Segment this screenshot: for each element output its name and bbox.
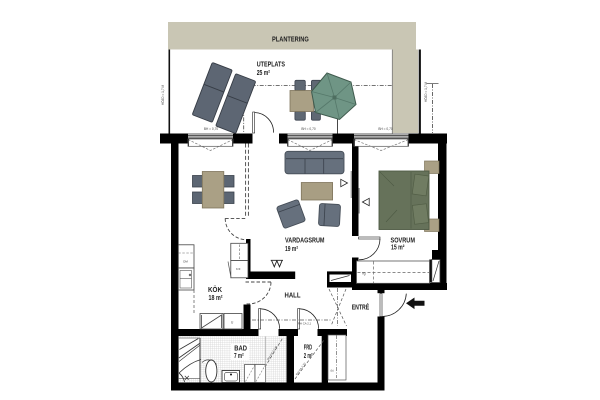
svg-text:DM: DM	[183, 259, 188, 263]
svg-text:SOVRUM: SOVRUM	[391, 236, 416, 245]
svg-text:ENTRÉ: ENTRÉ	[352, 302, 370, 311]
svg-text:RH CA 2,1: RH CA 2,1	[298, 322, 312, 326]
svg-text:K/F: K/F	[236, 267, 241, 271]
svg-text:15 m²: 15 m²	[391, 245, 405, 252]
svg-text:18 m²: 18 m²	[209, 295, 224, 302]
svg-text:7 m²: 7 m²	[234, 353, 244, 360]
svg-text:BAD: BAD	[234, 344, 247, 353]
svg-text:19 m²: 19 m²	[285, 246, 298, 253]
svg-text:FRD: FRD	[304, 343, 312, 352]
svg-text:25 m²: 25 m²	[257, 70, 271, 77]
svg-text:hg: hg	[362, 272, 366, 276]
svg-text:VARDAGSRUM: VARDAGSRUM	[285, 236, 325, 245]
svg-text:PLANTERING: PLANTERING	[272, 34, 309, 43]
svg-text:BH = 0,70: BH = 0,70	[301, 127, 315, 131]
svg-text:BH = 0,70: BH = 0,70	[204, 127, 218, 131]
svg-text:HALL: HALL	[285, 291, 302, 300]
svg-text:UTEPLATS: UTEPLATS	[257, 59, 285, 68]
svg-text:HÖJD = 1,7 M: HÖJD = 1,7 M	[161, 85, 165, 106]
svg-text:BH = 0,70: BH = 0,70	[378, 127, 392, 131]
svg-text:KÖK: KÖK	[208, 285, 223, 294]
svg-text:HÖJD = 1,7 M: HÖJD = 1,7 M	[424, 82, 428, 103]
svg-text:(b): (b)	[331, 369, 334, 373]
